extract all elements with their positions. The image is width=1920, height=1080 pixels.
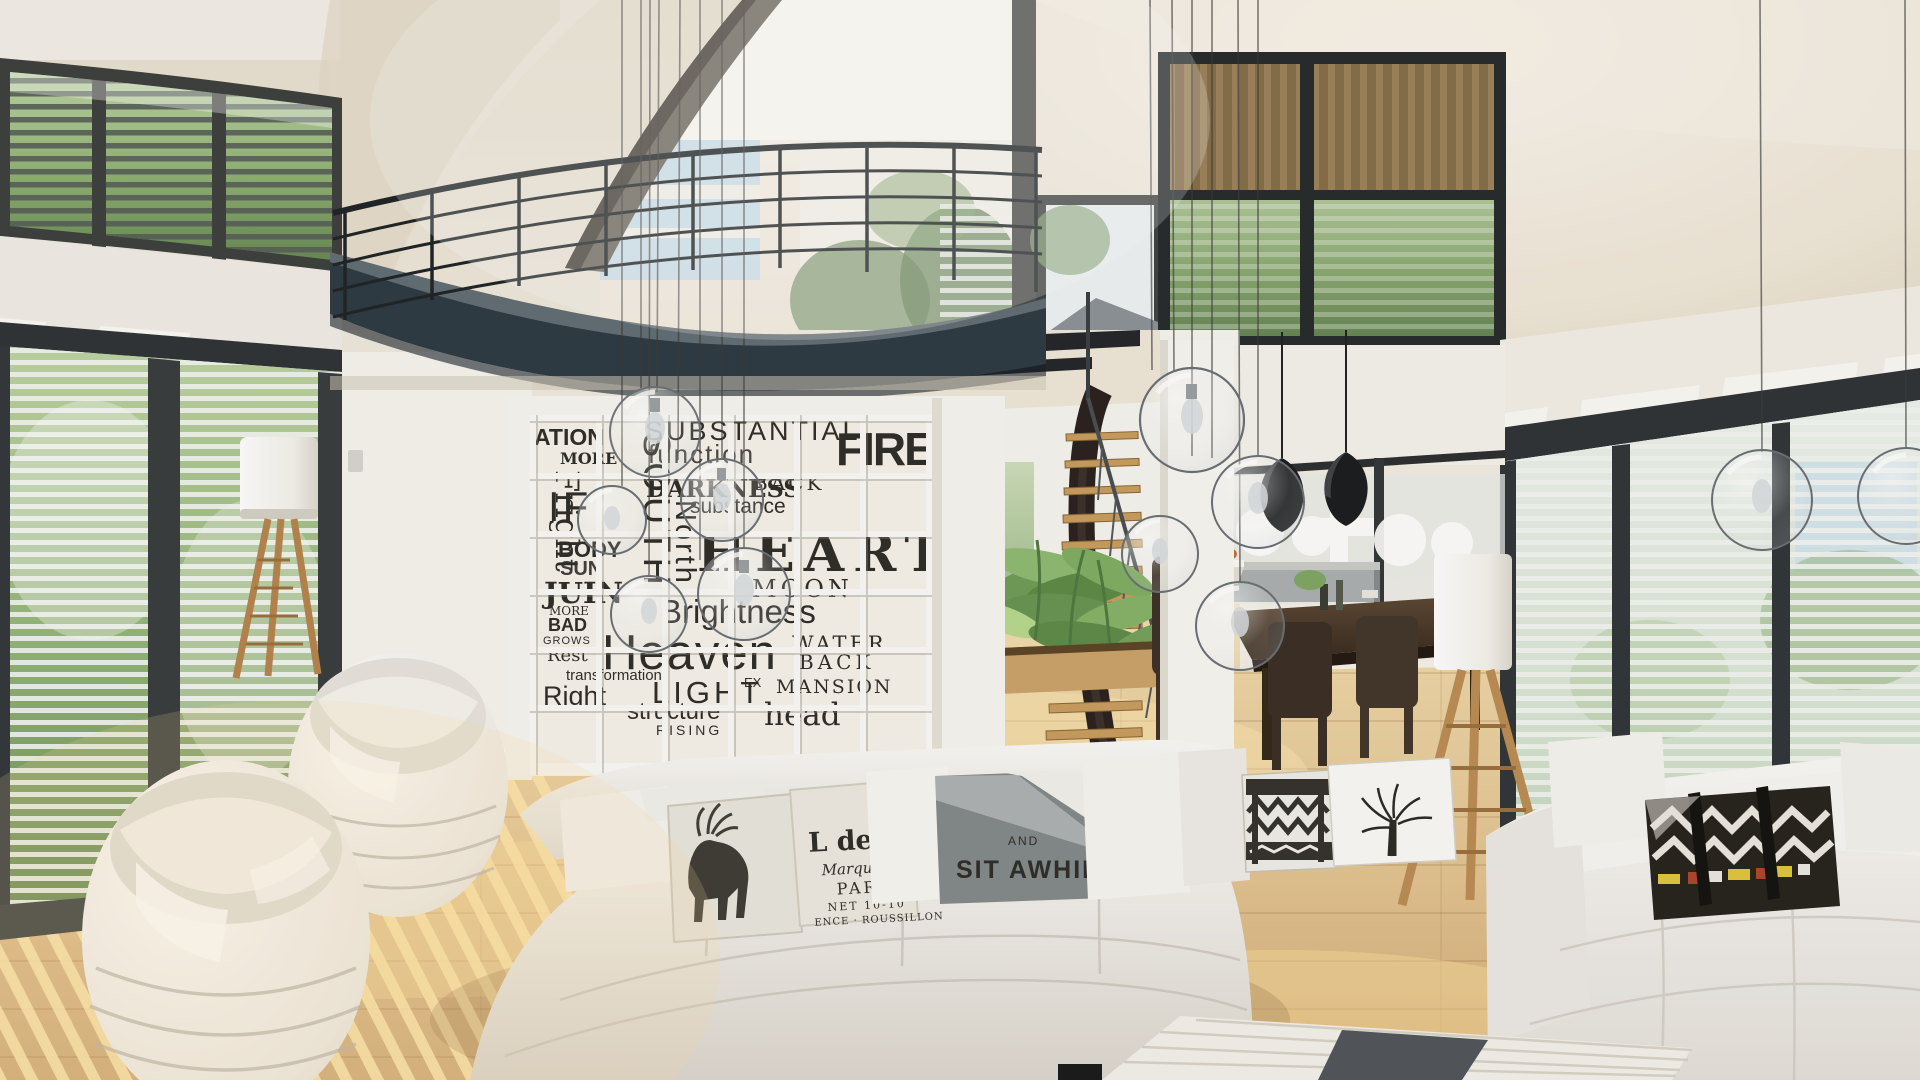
- light-bloom: [0, 0, 1920, 1080]
- scene-canvas: SUBSTANTIAL function ATION MORE FIRE DAR…: [0, 0, 1920, 1080]
- interior-render: SUBSTANTIAL function ATION MORE FIRE DAR…: [0, 0, 1920, 1080]
